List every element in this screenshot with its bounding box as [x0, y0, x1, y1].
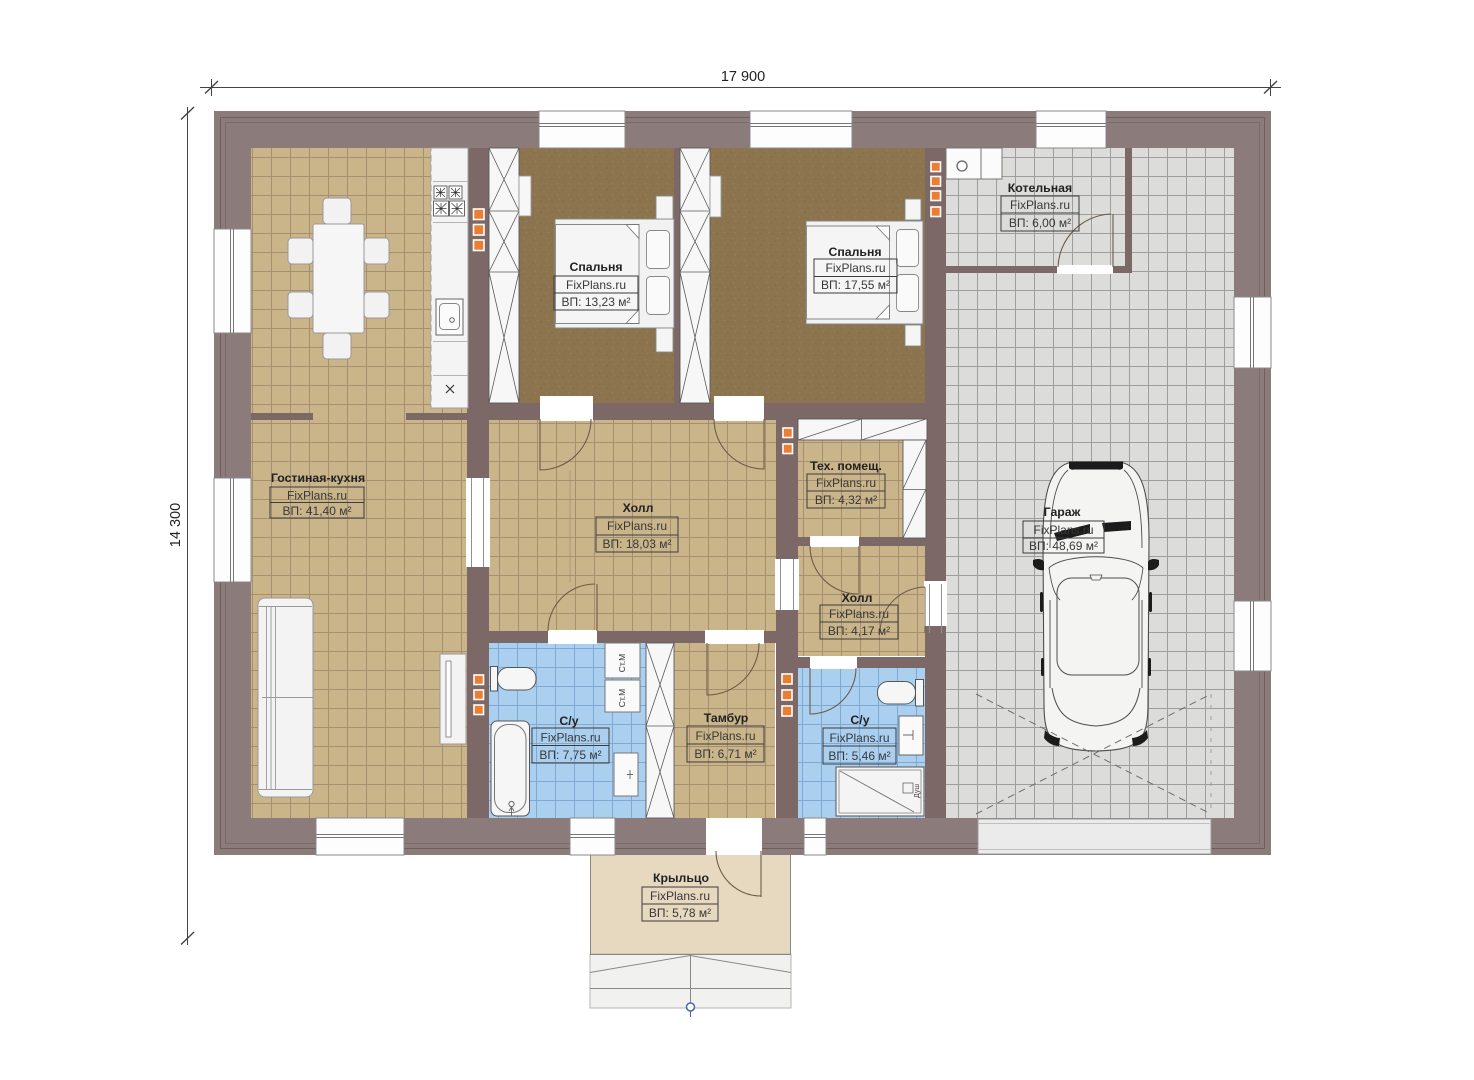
svg-text:Ст.М: Ст.М: [617, 654, 627, 673]
svg-text:Котельная: Котельная: [1008, 181, 1072, 195]
svg-text:С/у: С/у: [850, 713, 869, 727]
svg-text:Ст.М: Ст.М: [617, 689, 627, 708]
svg-text:Спальня: Спальня: [569, 260, 622, 274]
svg-text:ВП: 4,17 м²: ВП: 4,17 м²: [828, 624, 890, 638]
svg-text:ВП: 4,32 м²: ВП: 4,32 м²: [815, 493, 877, 507]
svg-text:Гараж: Гараж: [1044, 505, 1081, 519]
svg-text:Крыльцо: Крыльцо: [653, 871, 709, 885]
svg-text:ВП: 5,78 м²: ВП: 5,78 м²: [649, 906, 711, 920]
svg-text:ВП: 17,55 м²: ВП: 17,55 м²: [821, 278, 890, 292]
svg-text:С/у: С/у: [559, 714, 578, 728]
svg-text:FixPlans.ru: FixPlans.ru: [829, 731, 889, 745]
svg-text:FixPlans.ru: FixPlans.ru: [287, 489, 347, 503]
svg-text:17 900: 17 900: [721, 69, 765, 85]
svg-text:Тех. помещ.: Тех. помещ.: [810, 459, 882, 473]
svg-text:Гостиная-кухня: Гостиная-кухня: [271, 471, 365, 485]
svg-text:Душ: Душ: [914, 784, 921, 798]
svg-text:ВП: 6,00 м²: ВП: 6,00 м²: [1009, 216, 1071, 230]
svg-text:Холл: Холл: [623, 501, 654, 515]
svg-text:FixPlans.ru: FixPlans.ru: [816, 476, 876, 490]
svg-text:FixPlans.ru: FixPlans.ru: [1033, 523, 1093, 537]
svg-text:Тамбур: Тамбур: [704, 711, 749, 725]
svg-text:FixPlans.ru: FixPlans.ru: [695, 729, 755, 743]
svg-text:FixPlans.ru: FixPlans.ru: [650, 889, 710, 903]
svg-text:Холл: Холл: [842, 591, 873, 605]
svg-text:Спальня: Спальня: [828, 245, 881, 259]
svg-text:FixPlans.ru: FixPlans.ru: [1010, 198, 1070, 212]
svg-text:FixPlans.ru: FixPlans.ru: [607, 519, 667, 533]
svg-text:FixPlans.ru: FixPlans.ru: [825, 261, 885, 275]
svg-text:ВП: 6,71 м²: ВП: 6,71 м²: [694, 747, 756, 761]
svg-text:14 300: 14 300: [168, 503, 184, 547]
svg-text:ВП: 13,23 м²: ВП: 13,23 м²: [562, 295, 631, 309]
svg-text:ВП: 41,40 м²: ВП: 41,40 м²: [283, 504, 352, 518]
svg-text:FixPlans.ru: FixPlans.ru: [540, 731, 600, 745]
svg-text:ВП: 5,46 м²: ВП: 5,46 м²: [828, 749, 890, 763]
svg-text:ВП: 48,69 м²: ВП: 48,69 м²: [1029, 539, 1098, 553]
svg-text:FixPlans.ru: FixPlans.ru: [829, 607, 889, 621]
svg-text:FixPlans.ru: FixPlans.ru: [566, 278, 626, 292]
svg-text:ВП: 7,75 м²: ВП: 7,75 м²: [539, 748, 601, 762]
svg-text:ВП: 18,03 м²: ВП: 18,03 м²: [603, 537, 672, 551]
